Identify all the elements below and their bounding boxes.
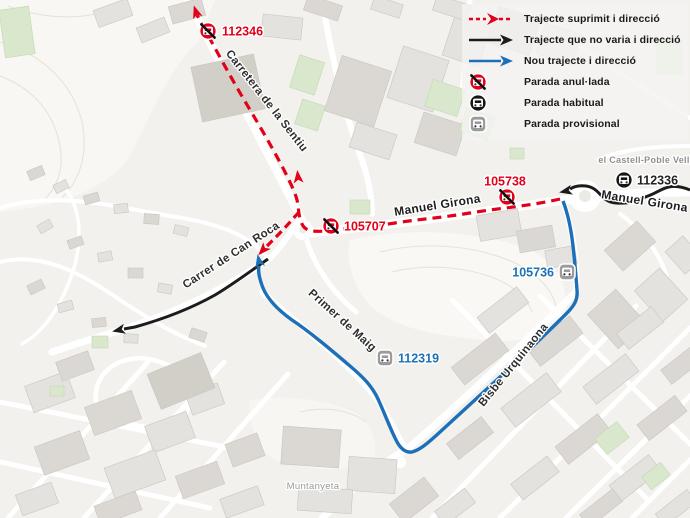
stop-id-label: 112336 (637, 174, 678, 188)
bus-stop-105707: 105707 (323, 218, 386, 235)
stop-id-label: 105707 (344, 220, 386, 234)
stop-icon-cancelled (200, 23, 217, 40)
stop-provisional-icon (468, 114, 516, 134)
stop-regular-icon (468, 93, 516, 113)
stop-id-label: 112319 (398, 352, 439, 366)
new-route-legend-symbol (468, 53, 514, 69)
stop-id-label: 105736 (512, 266, 554, 280)
map-building (347, 456, 397, 493)
map-building (124, 334, 138, 343)
map-building (261, 14, 303, 40)
stop-id-label: 105738 (484, 175, 526, 189)
stop-id-label: 112346 (222, 25, 263, 39)
legend-item-label: Parada habitual (516, 97, 604, 109)
map-building (281, 426, 342, 468)
bus-stop-112319: 112319 (377, 350, 439, 366)
suppressed-route-legend-symbol (468, 11, 514, 27)
legend-item-stop-regular: Parada habitual (468, 92, 686, 113)
stop-icon-cancelled (470, 73, 487, 90)
map-building (114, 203, 129, 213)
map-green-area (92, 336, 108, 348)
stop-icon-cancelled (499, 189, 516, 206)
street-name-label: el Castell-Poble Vell (598, 155, 689, 165)
dashed-arrow-red-icon (468, 11, 516, 27)
legend-item-dashed-arrow-red: Trajecte suprimit i direcció (468, 8, 686, 29)
legend-item-label: Trajecte suprimit i direcció (516, 13, 660, 25)
stop-icon-cancelled (323, 218, 340, 235)
legend-item-label: Parada provisional (516, 118, 620, 130)
map-building (128, 268, 143, 278)
arrow-black-icon (468, 32, 516, 48)
stop-cancelled-icon (468, 72, 516, 92)
bus-stop-105736: 105736 (512, 264, 575, 280)
bus-stop-112336: 112336 (616, 172, 678, 189)
stop-icon-provisional (377, 350, 393, 366)
roundabout-east-island (579, 190, 591, 202)
stop-icon-regular (616, 172, 633, 189)
unchanged-route-legend-symbol (468, 32, 514, 48)
map-building (144, 213, 160, 224)
legend-item-stop-provisional: Parada provisional (468, 113, 686, 134)
legend-item-stop-cancelled: Parada anul·lada (468, 71, 686, 92)
stop-icon-provisional (559, 264, 575, 280)
map-green-area (510, 148, 524, 159)
legend-item-label: Parada anul·lada (516, 76, 610, 88)
stop-icon-regular (470, 94, 487, 111)
bus-stop-112346: 112346 (200, 23, 263, 40)
legend-item-label: Nou trajecte i direcció (516, 55, 636, 67)
stop-icon-provisional (470, 116, 486, 132)
map-building (92, 317, 107, 327)
legend-item-label: Trajecte que no varia i direcció (516, 34, 681, 46)
map-legend: Trajecte suprimit i direcció Trajecte qu… (462, 4, 688, 140)
map-green-area (50, 386, 64, 396)
street-name-label: Muntanyeta (287, 481, 340, 492)
map-green-area (350, 200, 370, 214)
legend-item-arrow-black: Trajecte que no varia i direcció (468, 29, 686, 50)
arrow-blue-icon (468, 53, 516, 69)
legend-item-arrow-blue: Nou trajecte i direcció (468, 50, 686, 71)
